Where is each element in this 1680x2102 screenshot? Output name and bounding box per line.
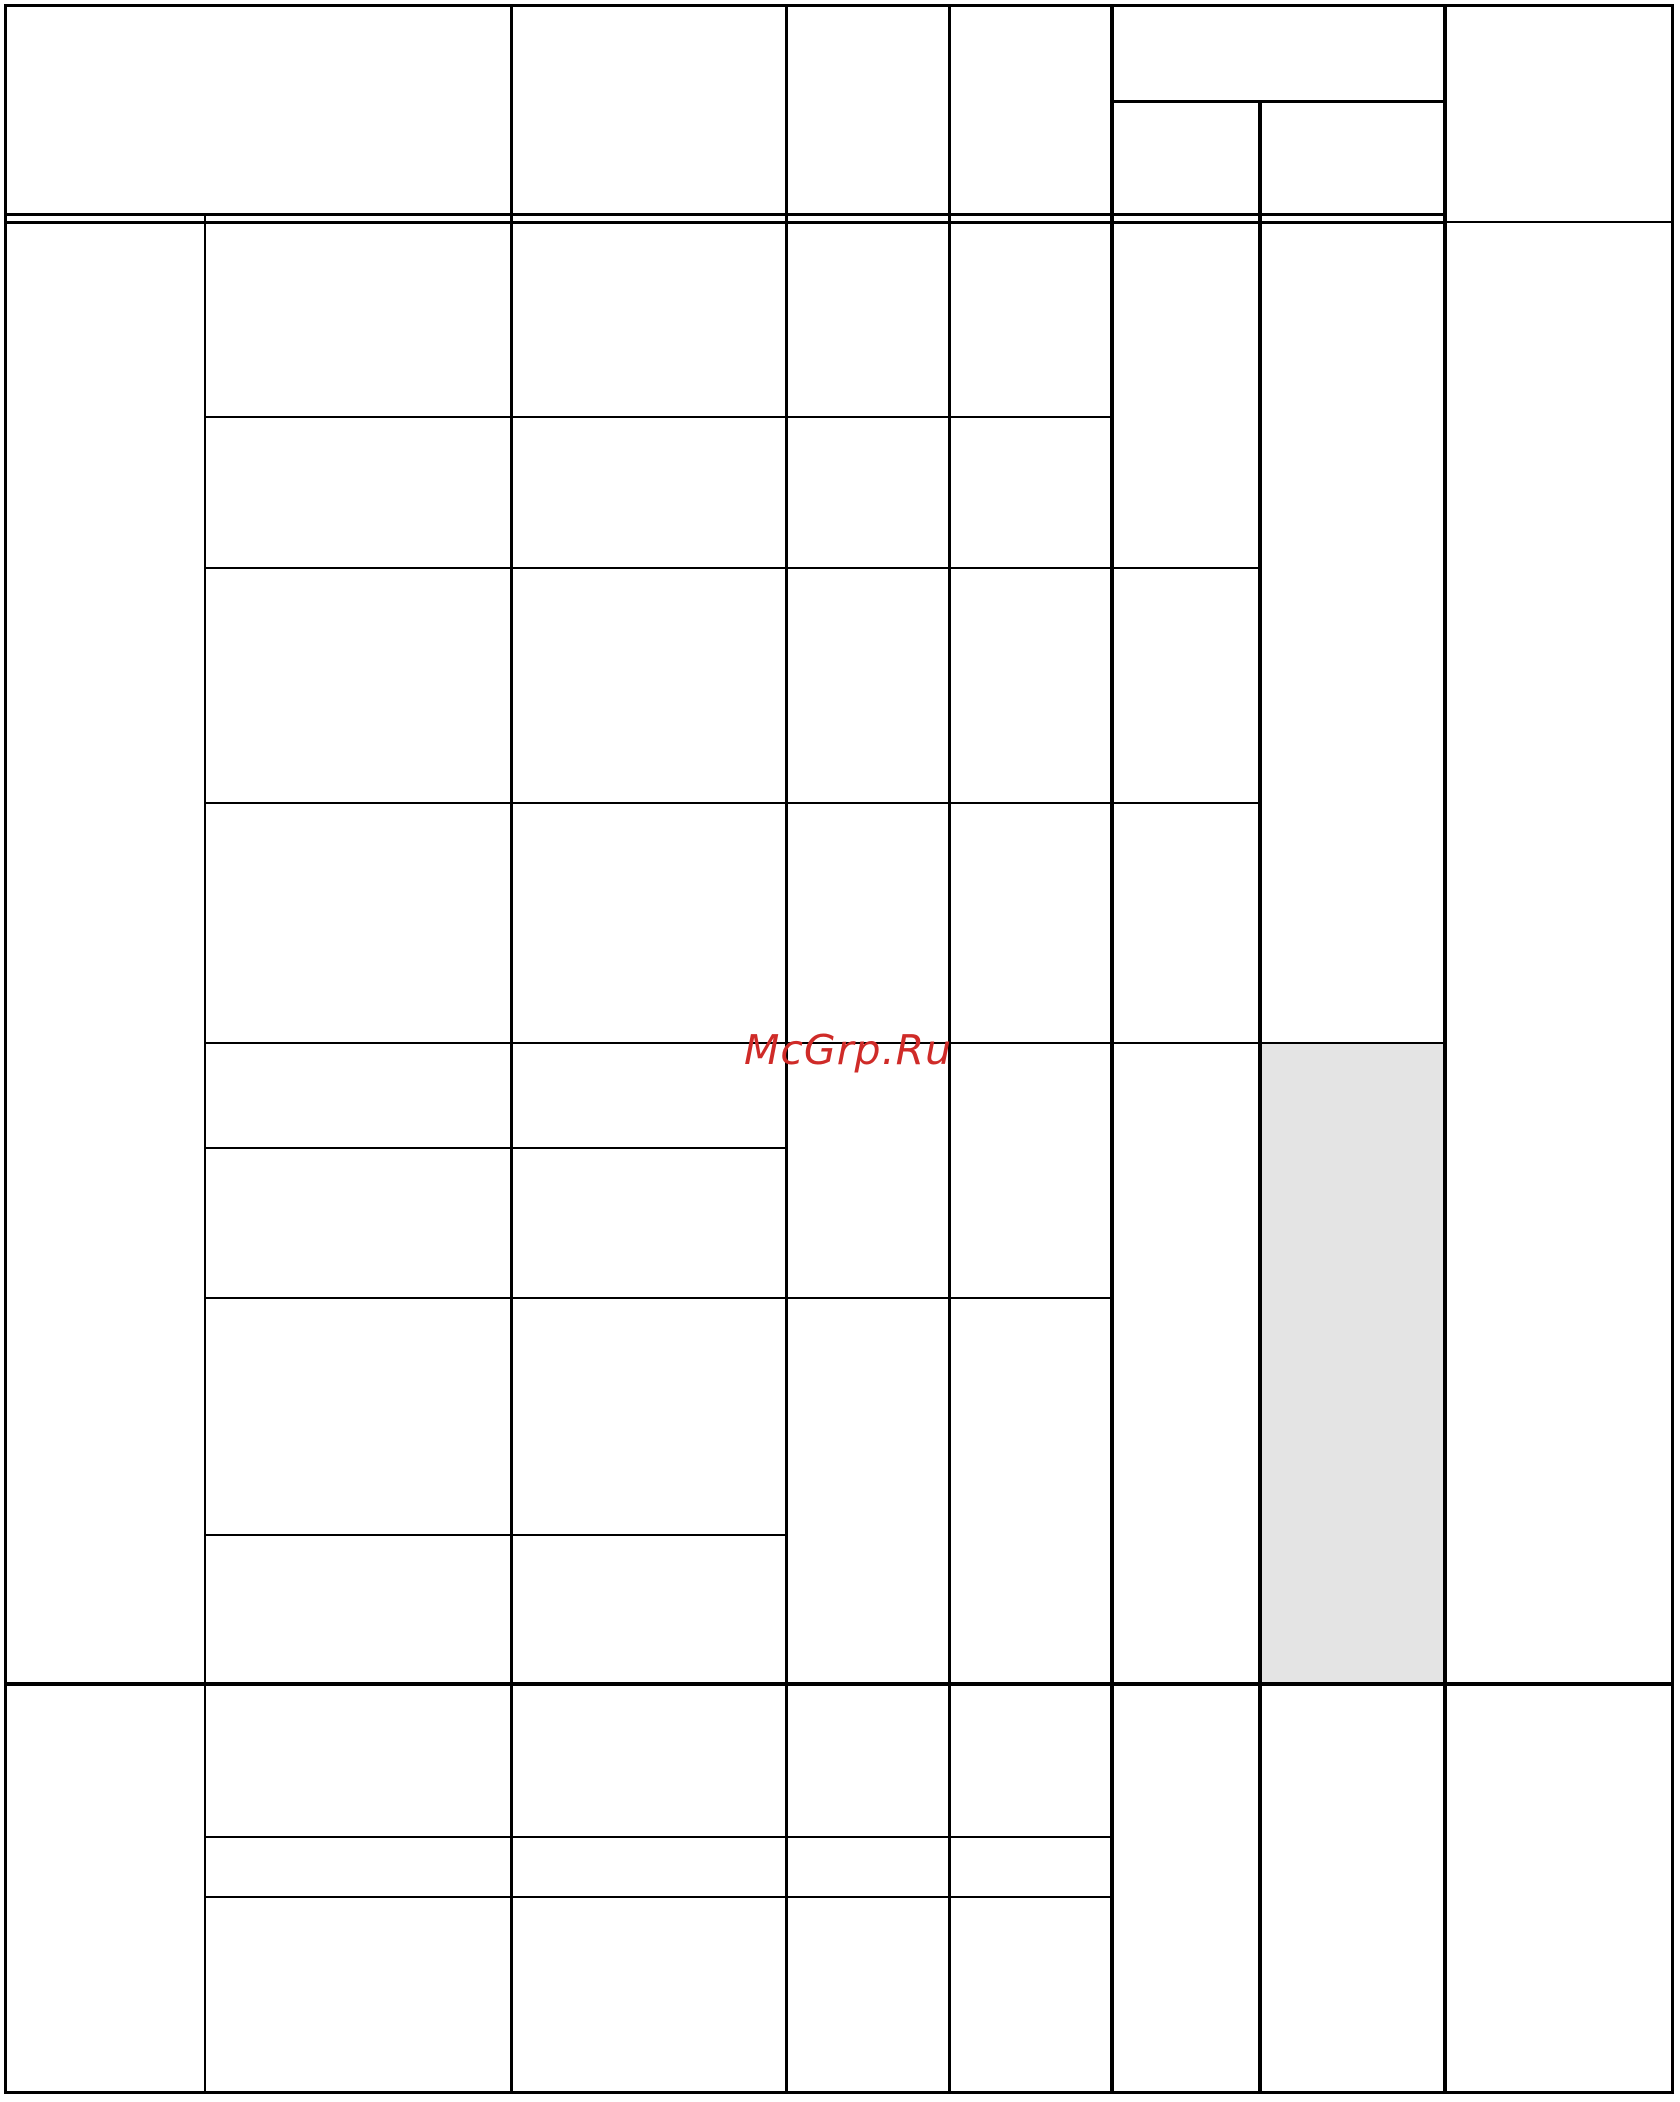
grid-line-row <box>204 567 1260 569</box>
grid-line-row <box>204 1896 1112 1898</box>
grid-line-vertical <box>204 215 206 2091</box>
header-double-rule-lower <box>4 221 1447 224</box>
header-rule-right-segment <box>1447 221 1671 223</box>
watermark-text: McGrp.Ru <box>744 1028 952 1072</box>
header-subdivider-line <box>1110 100 1447 103</box>
grid-line-vertical <box>510 4 513 2091</box>
grid-line-vertical <box>1258 100 1262 2091</box>
table-page: McGrp.Ru <box>0 0 1680 2102</box>
grid-line-row <box>204 1297 1112 1299</box>
grid-line-vertical <box>1110 4 1114 2091</box>
grid-line-row <box>204 1534 787 1536</box>
shaded-table-cell <box>1262 1044 1443 1682</box>
table-border-top <box>4 4 1674 7</box>
section-divider-line <box>4 1682 1674 1686</box>
grid-line-row <box>204 802 1260 804</box>
table-border-left <box>4 4 7 2094</box>
table-border-right <box>1671 4 1674 2094</box>
grid-line-vertical <box>1443 4 1447 2091</box>
grid-line-row <box>204 1147 787 1149</box>
table-border-bottom <box>4 2091 1674 2094</box>
grid-line-row <box>204 1836 1112 1838</box>
grid-line-row <box>204 416 1112 418</box>
header-double-rule-upper <box>4 213 1447 216</box>
